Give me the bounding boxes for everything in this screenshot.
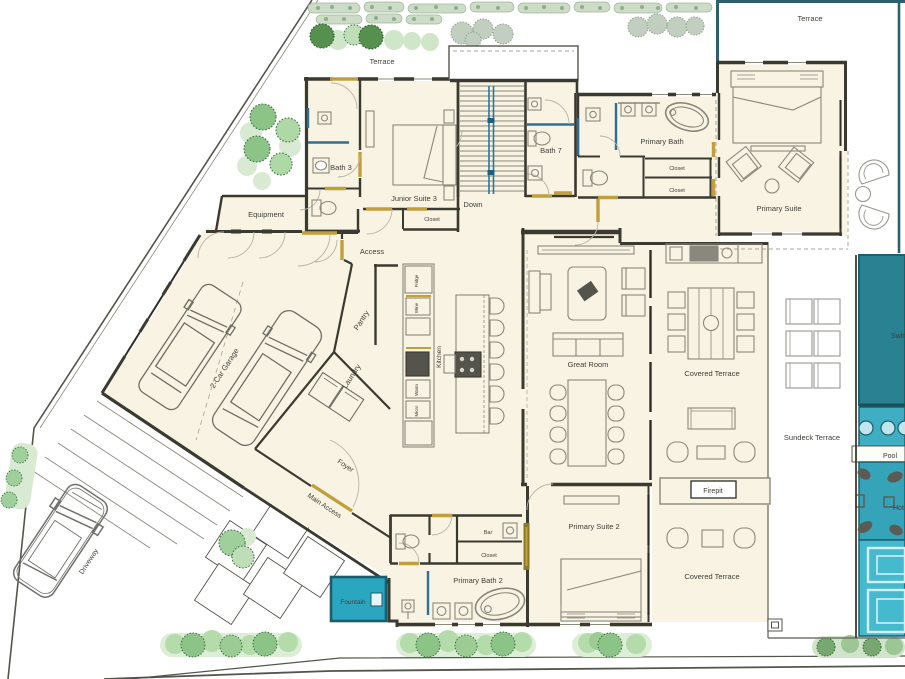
svg-text:Firepit: Firepit [703,488,723,495]
svg-text:Kitchen: Kitchen [436,346,443,368]
svg-text:Fridge: Fridge [414,274,419,287]
svg-text:Micro: Micro [414,405,419,416]
svg-text:Sundeck Terrace: Sundeck Terrace [784,433,840,442]
svg-text:Bath 7: Bath 7 [540,146,562,155]
svg-text:Closet: Closet [669,166,685,172]
svg-text:Bar: Bar [484,530,493,536]
svg-text:Primary Bath 2: Primary Bath 2 [453,576,503,585]
svg-text:Primary Suite: Primary Suite [756,204,801,213]
svg-text:Terrace: Terrace [797,14,822,23]
svg-text:Fountain: Fountain [340,599,366,606]
svg-text:Great Room: Great Room [568,360,609,369]
svg-text:Wine: Wine [414,302,419,313]
svg-text:Primary Suite 2: Primary Suite 2 [568,522,619,531]
svg-text:Closet: Closet [424,217,440,223]
svg-text:Junior Suite 3: Junior Suite 3 [391,194,437,203]
svg-text:Covered Terrace: Covered Terrace [684,369,739,378]
svg-text:Hot: Hot [893,505,904,512]
svg-text:Down: Down [463,200,482,209]
svg-text:Pool: Pool [883,453,897,460]
svg-text:Access: Access [360,247,384,256]
svg-text:Swim: Swim [891,333,905,340]
svg-text:Equipment: Equipment [248,210,285,219]
svg-text:Terrace: Terrace [369,57,394,66]
svg-text:Covered Terrace: Covered Terrace [684,572,739,581]
svg-text:Primary Bath: Primary Bath [640,137,683,146]
svg-text:Bath 3: Bath 3 [330,163,352,172]
svg-text:Closet: Closet [669,188,685,194]
svg-text:Warm: Warm [414,384,419,396]
svg-text:Closet: Closet [481,553,497,559]
